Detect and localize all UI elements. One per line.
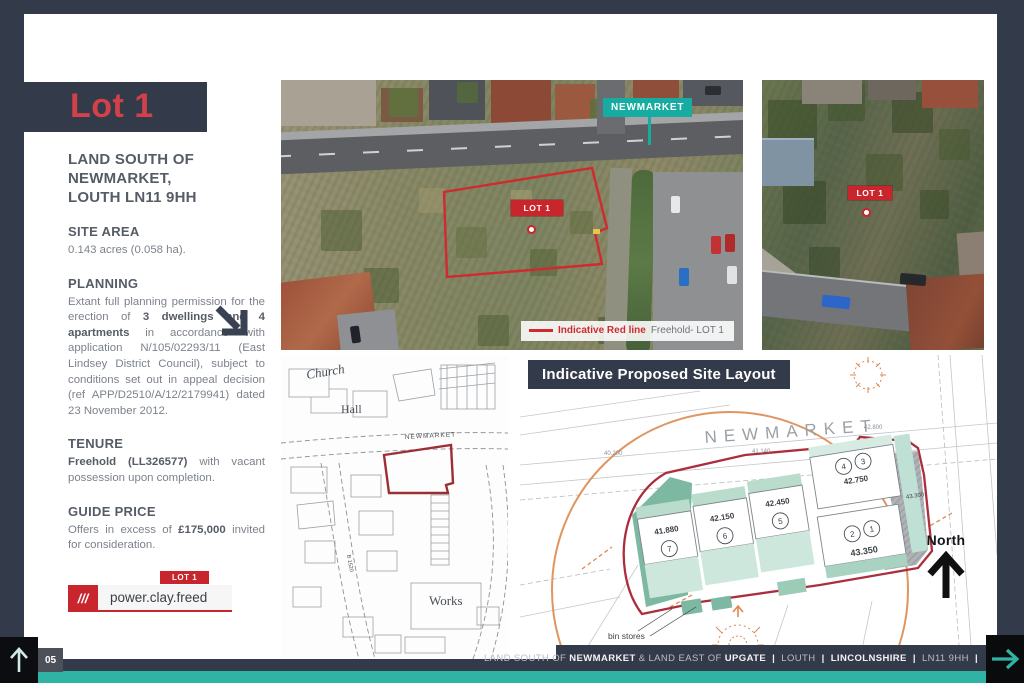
address-line-1: LAND SOUTH OF (68, 150, 265, 169)
tenure-heading: TENURE (68, 436, 265, 451)
teal-strip (0, 671, 988, 683)
red-line-legend: Indicative Red line Freehold- LOT 1 (521, 321, 734, 341)
site-layout-title: Indicative Proposed Site Layout (528, 360, 790, 389)
footer-seg: | (766, 653, 781, 664)
site-area-value: 0.143 acres (0.058 ha). (68, 243, 265, 259)
apartment-block-43 (808, 434, 901, 508)
aerial-photo-secondary: LOT 1 (762, 80, 984, 350)
map-red-plot-outline (384, 445, 453, 493)
building-roof (802, 80, 862, 104)
guide-price-section: GUIDE PRICE Offers in excess of £175,000… (68, 504, 265, 554)
north-indicator: North (915, 532, 977, 605)
blue-fence (762, 138, 814, 186)
footer-seg: UPGATE (725, 653, 766, 664)
footer-seg: LOUTH (781, 653, 815, 664)
level-40200: 40.200 (604, 451, 623, 457)
lot1-badge-secondary: LOT 1 (848, 186, 892, 200)
lot-banner: Lot 1 (24, 82, 207, 132)
lot1-marker (527, 225, 536, 234)
map-label-b-road: B 1520 (345, 554, 354, 572)
guide-price-pre: Offers in excess of (68, 524, 178, 536)
what3words-block: LOT 1 /// power.clay.freed (68, 571, 265, 617)
what3words-icon: /// (68, 585, 98, 612)
level-41140: 41.140 (752, 449, 771, 455)
apartment-block-21 (817, 504, 908, 578)
what3words-address: power.clay.freed (98, 585, 232, 612)
lot-title: Lot 1 (70, 87, 154, 126)
planning-heading: PLANNING (68, 276, 265, 291)
plots-group: 41.880 42.150 42.450 42.750 43.350 7 6 5… (630, 431, 937, 620)
legend-rest: Freehold- LOT 1 (651, 325, 724, 336)
footer-seg: LAND SOUTH OF (484, 653, 569, 664)
legend-swatch (529, 329, 553, 332)
aerial-photo-main: LOT 1 NEWMARKET Indicative Red line Free… (281, 80, 743, 350)
address-line-2: NEWMARKET, (68, 169, 265, 188)
building-roof (922, 80, 978, 108)
lot1-marker (862, 208, 871, 217)
legend-label: Indicative Red line (558, 325, 646, 336)
right-arrow-icon (990, 648, 1020, 670)
level-42800: 42.800 (864, 425, 883, 431)
footer-bar: LAND SOUTH OF NEWMARKET & LAND EAST OF U… (556, 645, 988, 671)
building-roof (868, 80, 916, 100)
north-label: North (915, 532, 977, 548)
footer-seg: & LAND EAST OF (636, 653, 725, 664)
guide-price-amount: £175,000 (178, 524, 226, 536)
north-arrow-icon (924, 548, 968, 600)
tenure-text-bold: Freehold (LL326577) (68, 456, 187, 468)
map-label-road: NEWMARKET (405, 431, 457, 441)
compass-top-right (850, 357, 886, 393)
property-address: LAND SOUTH OF NEWMARKET, LOUTH LN11 9HH (68, 150, 265, 207)
guide-price-text: Offers in excess of £175,000 invited for… (68, 523, 265, 554)
map-label-works: Works (429, 593, 463, 608)
guide-price-heading: GUIDE PRICE (68, 504, 265, 519)
tenure-text: Freehold (LL326577) with vacant possessi… (68, 455, 265, 486)
bin-stores-label: bin stores (608, 631, 645, 641)
footer-seg: NEWMARKET (569, 653, 635, 664)
car (900, 273, 927, 286)
diagonal-arrow-icon (210, 296, 254, 340)
footer-seg: LINCOLNSHIRE (831, 653, 907, 664)
footer-seg: LN11 9HH (922, 653, 969, 664)
address-line-3: LOUTH LN11 9HH (68, 188, 265, 207)
tree-blobs (762, 80, 763, 81)
page-number: 05 (38, 648, 63, 672)
nav-next-button[interactable] (986, 635, 1024, 683)
tenure-section: TENURE Freehold (LL326577) with vacant p… (68, 436, 265, 486)
map-label-hall: Hall (341, 402, 362, 416)
footer-seg: | (969, 653, 978, 664)
site-area-section: SITE AREA 0.143 acres (0.058 ha). (68, 224, 265, 259)
newmarket-road-sign: NEWMARKET (603, 98, 692, 117)
location-map: Church Hall NEWMARKET Works B 1520 (281, 355, 508, 659)
footer-seg: | (816, 653, 831, 664)
what3words-lot-badge: LOT 1 (160, 571, 209, 584)
footer-seg: | (907, 653, 922, 664)
planning-text-c: in accordance with application N/105/022… (68, 327, 265, 417)
details-column: LAND SOUTH OF NEWMARKET, LOUTH LN11 9HH … (68, 150, 265, 617)
lot1-badge-main: LOT 1 (511, 200, 563, 216)
house-roof (957, 231, 984, 276)
up-arrow-icon (8, 646, 30, 674)
brochure-page: Lot 1 LAND SOUTH OF NEWMARKET, LOUTH LN1… (0, 0, 1024, 683)
nav-up-button[interactable] (0, 637, 38, 683)
proposed-site-layout: 41.880 42.150 42.450 42.750 43.350 7 6 5… (520, 355, 997, 659)
site-area-heading: SITE AREA (68, 224, 265, 239)
map-label-church: Church (305, 361, 345, 382)
